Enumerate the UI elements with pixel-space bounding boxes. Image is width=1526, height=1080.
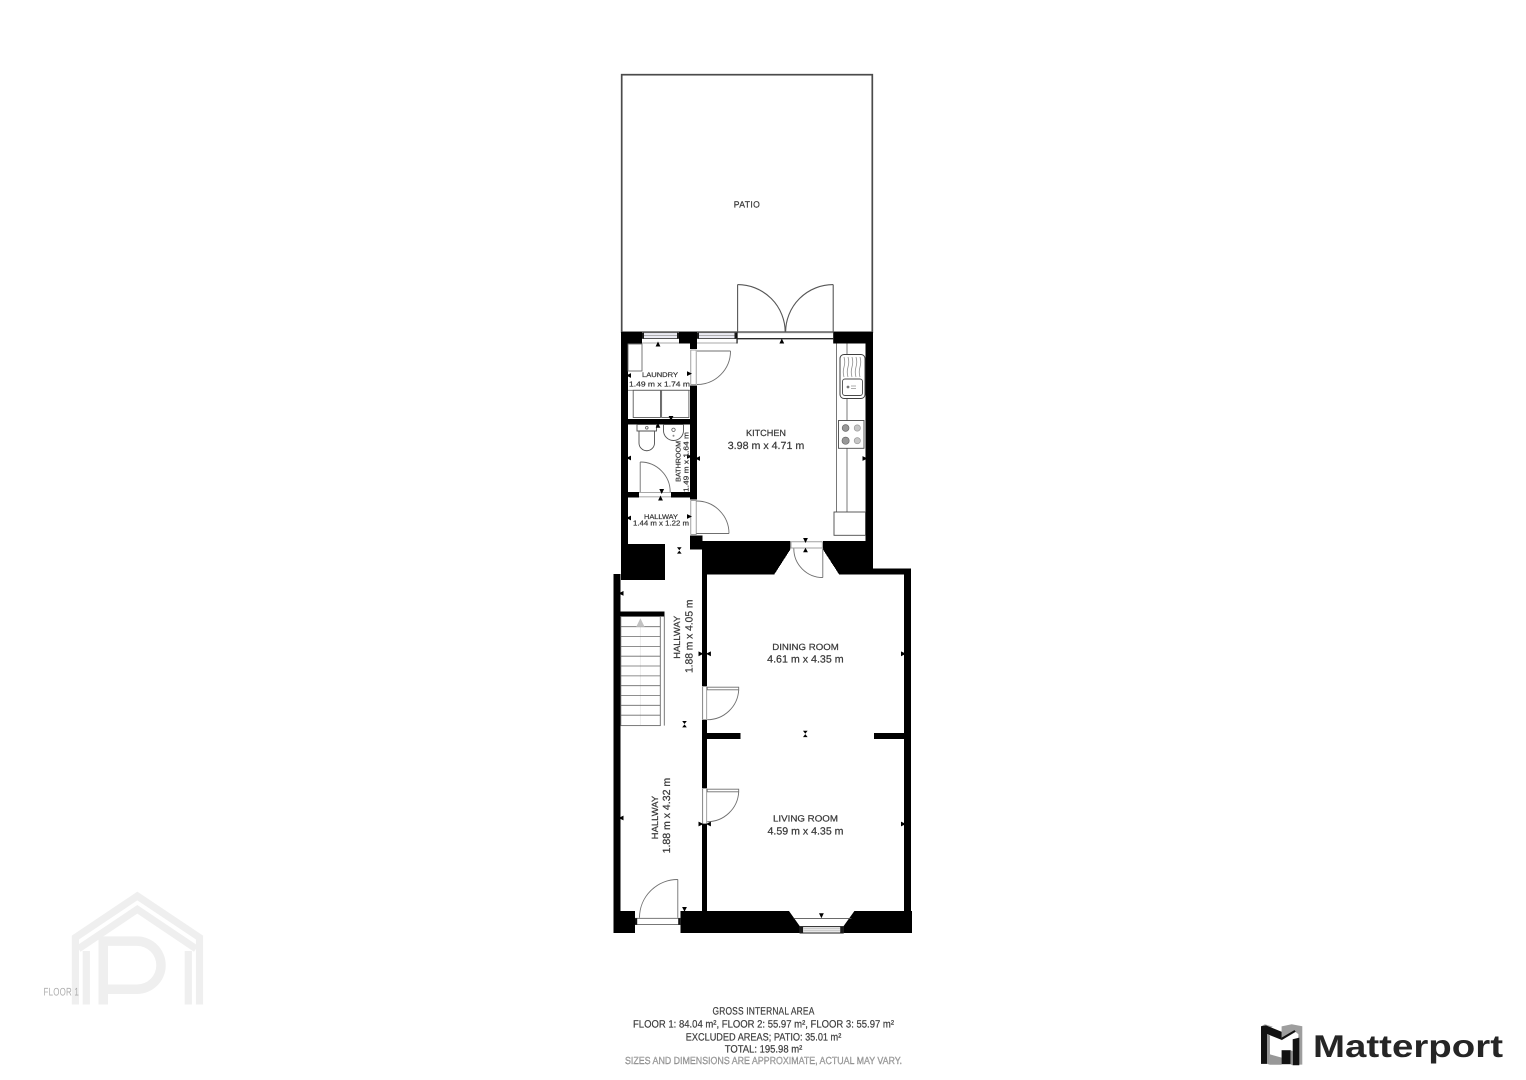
svg-text:SIZES AND DIMENSIONS ARE APPRO: SIZES AND DIMENSIONS ARE APPROXIMATE, AC… (625, 1056, 902, 1067)
svg-text:PATIO: PATIO (734, 200, 761, 210)
svg-text:Matterport: Matterport (1313, 1028, 1504, 1064)
svg-text:HALLWAY: HALLWAY (650, 796, 660, 839)
svg-text:4.61 m x 4.35 m: 4.61 m x 4.35 m (767, 654, 844, 665)
svg-text:DINING ROOM: DINING ROOM (772, 642, 839, 652)
svg-text:FLOOR 1: FLOOR 1 (44, 986, 80, 998)
svg-text:1.88 m x 4.05 m: 1.88 m x 4.05 m (684, 600, 695, 674)
svg-text:1.49 m x 1.64 m: 1.49 m x 1.64 m (681, 432, 690, 492)
svg-text:1.44 m x 1.22 m: 1.44 m x 1.22 m (633, 519, 689, 528)
svg-text:TOTAL: 195.98 m²: TOTAL: 195.98 m² (725, 1044, 803, 1056)
svg-text:3.98 m x 4.71 m: 3.98 m x 4.71 m (728, 441, 805, 452)
svg-text:1.88 m x 4.32 m: 1.88 m x 4.32 m (662, 778, 673, 854)
svg-text:LIVING ROOM: LIVING ROOM (773, 814, 838, 824)
svg-text:GROSS INTERNAL AREA: GROSS INTERNAL AREA (713, 1006, 816, 1018)
svg-text:LAUNDRY: LAUNDRY (642, 372, 679, 379)
svg-text:HALLWAY: HALLWAY (672, 616, 682, 659)
svg-text:4.59 m x 4.35 m: 4.59 m x 4.35 m (768, 826, 844, 837)
svg-text:EXCLUDED AREAS; PATIO: 35.01 m: EXCLUDED AREAS; PATIO: 35.01 m² (686, 1031, 842, 1043)
svg-text:KITCHEN: KITCHEN (746, 428, 786, 438)
svg-text:FLOOR 1: 84.04 m², FLOOR 2: 55: FLOOR 1: 84.04 m², FLOOR 2: 55.97 m², FL… (633, 1019, 894, 1031)
svg-text:1.49 m x 1.74 m: 1.49 m x 1.74 m (629, 380, 690, 389)
